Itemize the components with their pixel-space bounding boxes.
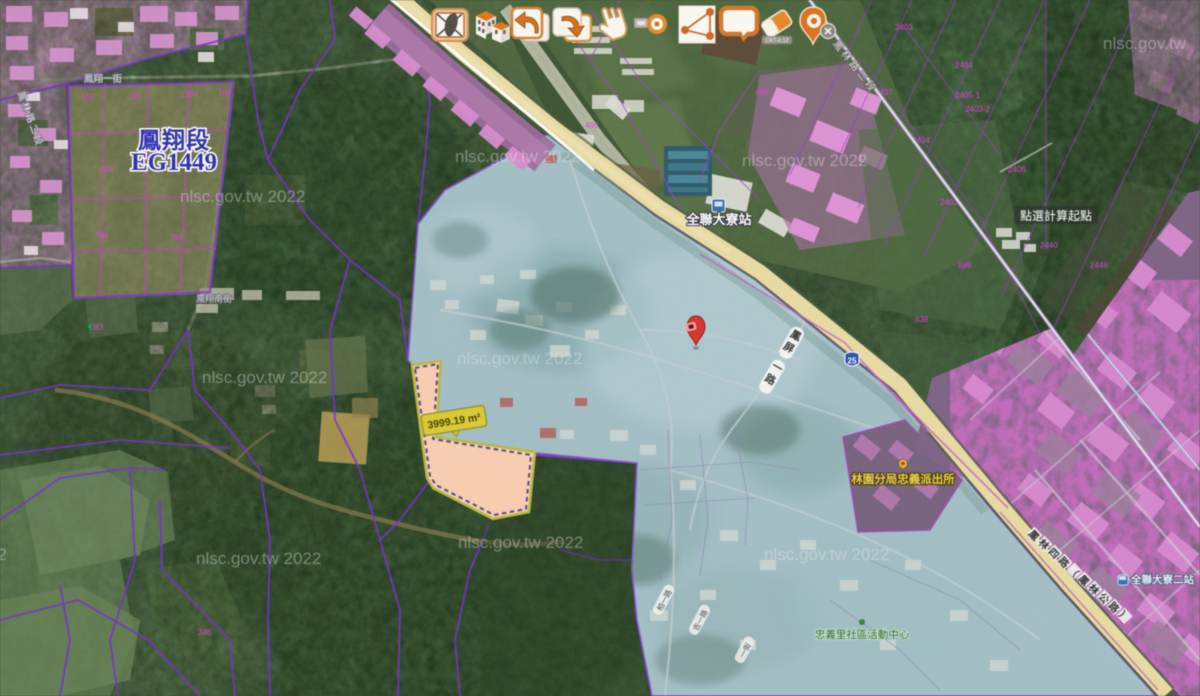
svg-text:EG1449: EG1449 <box>131 149 217 176</box>
svg-text:nlsc.gov.tw 2022: nlsc.gov.tw 2022 <box>180 187 305 206</box>
svg-text:nlsc.gov.tw 2022: nlsc.gov.tw 2022 <box>457 349 582 368</box>
svg-text:nlsc.gov.tw 2022: nlsc.gov.tw 2022 <box>196 549 321 568</box>
svg-text:22: 22 <box>0 545 7 564</box>
svg-text:全聯大寮站: 全聯大寮站 <box>685 212 751 227</box>
svg-text:全聯大寮二站: 全聯大寮二站 <box>1130 573 1194 586</box>
svg-text:nlsc.gov.tw 2022: nlsc.gov.tw 2022 <box>742 151 867 170</box>
svg-text:nlsc.gov.tw 2022: nlsc.gov.tw 2022 <box>764 545 889 564</box>
svg-text:點選計算起點: 點選計算起點 <box>1020 208 1092 223</box>
svg-text:nlsc.gov.tw: nlsc.gov.tw <box>1103 34 1187 53</box>
svg-text:CKT-0.12: CKT-0.12 <box>765 38 788 44</box>
svg-text:林園分局忠義派出所: 林園分局忠義派出所 <box>851 472 955 486</box>
svg-text:nlsc.gov.tw 2022: nlsc.gov.tw 2022 <box>458 533 583 552</box>
svg-text:忠義里社區活動中心: 忠義里社區活動中心 <box>815 628 910 641</box>
svg-text:nlsc.gov.tw 2022: nlsc.gov.tw 2022 <box>202 368 327 387</box>
svg-text:nlsc.gov.tw 2022: nlsc.gov.tw 2022 <box>455 147 580 166</box>
svg-text:鳳翔南街: 鳳翔南街 <box>196 293 232 304</box>
svg-text:鳳翔一街: 鳳翔一街 <box>84 73 123 85</box>
